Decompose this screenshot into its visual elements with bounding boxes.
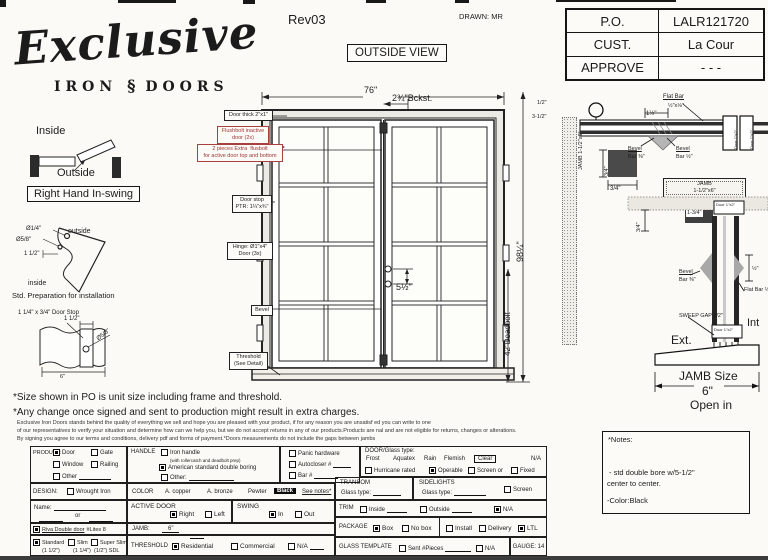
hurricane-checkbox[interactable] bbox=[365, 467, 372, 474]
iron-handle-checkbox[interactable] bbox=[161, 449, 168, 456]
trim-inside-checkbox[interactable] bbox=[360, 506, 367, 513]
option-package-ltl[interactable]: LTL bbox=[518, 525, 538, 532]
dim-bore: 5½" bbox=[396, 282, 412, 292]
railing-checkbox[interactable] bbox=[91, 461, 98, 468]
option-commercial[interactable]: Commercial bbox=[231, 543, 275, 550]
po-row: P.O. LALR121720 bbox=[567, 10, 763, 33]
trim-na-label: N/A bbox=[503, 507, 513, 513]
autocloser-label: Autocloser # bbox=[298, 462, 331, 468]
section-half-dim: ½" bbox=[752, 266, 759, 273]
autocloser-checkbox[interactable] bbox=[289, 461, 296, 468]
plan-h34-dim: 3/4" bbox=[610, 186, 620, 192]
dim-half: 1/2" bbox=[537, 100, 547, 107]
design-label: DESIGN: bbox=[33, 489, 58, 495]
jamb-value[interactable]: 6" bbox=[162, 526, 179, 533]
option-wrought-iron[interactable]: Wrought Iron bbox=[67, 488, 111, 495]
residential-checkbox[interactable] bbox=[172, 543, 179, 550]
door-label: Door bbox=[62, 450, 75, 456]
option-slim[interactable]: Slim bbox=[68, 539, 88, 546]
glass-na[interactable]: N/A bbox=[531, 456, 541, 462]
active-left-checkbox[interactable] bbox=[205, 511, 212, 518]
bevel-bar-1-label: Bevel bbox=[628, 146, 642, 153]
option-active-left[interactable]: Left bbox=[205, 511, 225, 518]
sidelights-glass-type[interactable]: Glass type: bbox=[422, 489, 486, 496]
bracket-dim-label: 1 1/2" bbox=[24, 251, 39, 257]
scan-artifact bbox=[0, 0, 6, 7]
form-glass-template-cell: GLASS TEMPLATE Sent #Pieces N/A bbox=[335, 537, 510, 556]
logo-iron: IRON bbox=[54, 79, 117, 95]
option-operable[interactable]: Operable bbox=[429, 467, 463, 474]
bracket-inside-label: inside bbox=[28, 280, 46, 287]
jamb-size-title: JAMB Size bbox=[679, 369, 738, 383]
hinge-label: Hinge: Ø1"x4" Door (3x) bbox=[227, 242, 273, 260]
form-swing-cell: SWING In Out bbox=[232, 500, 335, 523]
template-sent-label: Sent #Pieces bbox=[408, 546, 443, 552]
template-pieces-blank[interactable] bbox=[445, 545, 471, 552]
name-label: Name: bbox=[34, 505, 52, 511]
active-right-checkbox[interactable] bbox=[170, 511, 177, 518]
operable-label: Operable bbox=[438, 468, 463, 474]
form-product-cell: PRODUCT: Door Gate Window Railing Other bbox=[30, 446, 127, 483]
jamb-label: JAMB: bbox=[132, 526, 150, 532]
swing-label: SWING bbox=[237, 503, 259, 510]
standard-size: (1 1/2") bbox=[42, 548, 60, 555]
american-boring-label: American standard double boring bbox=[168, 465, 256, 471]
bar-label: Bar # bbox=[298, 473, 312, 479]
slim-checkbox[interactable] bbox=[68, 539, 75, 546]
option-template-na[interactable]: N/A bbox=[476, 545, 495, 552]
dim-threehalf: 3-1/2" bbox=[532, 114, 547, 121]
transom-glass-label: Glass type: bbox=[341, 490, 371, 496]
install-checkbox[interactable] bbox=[446, 525, 453, 532]
fixed-checkbox[interactable] bbox=[511, 467, 518, 474]
section-134-dim: 1-3/4" bbox=[686, 210, 703, 217]
door-checkbox[interactable] bbox=[53, 449, 60, 456]
window-checkbox[interactable] bbox=[53, 461, 60, 468]
bracket-dia1-label: Ø1/4" bbox=[26, 226, 41, 232]
operable-checkbox[interactable] bbox=[429, 467, 436, 474]
option-trim-na[interactable]: N/A bbox=[494, 506, 513, 513]
commercial-checkbox[interactable] bbox=[231, 543, 238, 550]
cust-value: La Cour bbox=[659, 33, 763, 55]
notes-line-bore: - std double bore w/5-1/2" bbox=[609, 468, 695, 477]
name-blank[interactable] bbox=[54, 504, 106, 511]
option-swing-in[interactable]: In bbox=[269, 511, 283, 518]
color-label: COLOR bbox=[132, 489, 153, 495]
wrought-iron-label: Wrought Iron bbox=[76, 489, 111, 495]
option-railing[interactable]: Railing bbox=[91, 461, 118, 468]
gauge-value: GAUGE: 14 bbox=[513, 544, 545, 550]
dim-backset: 2¾"Bckst. bbox=[392, 93, 432, 103]
logo-exclusive: Exclusive bbox=[12, 6, 260, 76]
option-hurricane[interactable]: Hurricane rated bbox=[365, 467, 415, 474]
form-jamb-cell: JAMB: 6" bbox=[127, 523, 335, 535]
glass-rain[interactable]: Rain bbox=[424, 456, 436, 462]
option-iron-handle[interactable]: Iron handle bbox=[161, 449, 200, 456]
super-slim-label: Super Slim bbox=[100, 540, 127, 546]
threshold-label: Threshold (See Detail) bbox=[229, 352, 268, 370]
hurricane-label: Hurricane rated bbox=[374, 468, 415, 474]
glass-aquatex[interactable]: Aquatex bbox=[393, 456, 415, 462]
fixed-label: Fixed bbox=[520, 468, 535, 474]
install-label: Install bbox=[455, 525, 472, 532]
inside-label: Inside bbox=[36, 125, 65, 137]
outside-label: Outside bbox=[57, 167, 95, 179]
active-door-label: ACTIVE DOOR bbox=[131, 503, 176, 510]
slim-label: Slim bbox=[77, 540, 88, 546]
form-riva-cell: Riva Double door#Lites 8 bbox=[30, 523, 127, 535]
interior-label: Int bbox=[747, 317, 759, 329]
sidelight-screen-checkbox[interactable] bbox=[504, 486, 511, 493]
glass-template-label: GLASS TEMPLATE bbox=[339, 544, 392, 550]
option-gate[interactable]: Gate bbox=[91, 449, 113, 456]
swing-in-checkbox[interactable] bbox=[269, 511, 276, 518]
notes-line-color: -Color:Black bbox=[607, 496, 648, 505]
autocloser-blank[interactable] bbox=[333, 461, 351, 468]
swing-out-checkbox[interactable] bbox=[295, 511, 302, 518]
trim-outside-blank[interactable] bbox=[452, 506, 472, 513]
panic-checkbox[interactable] bbox=[289, 450, 296, 457]
notes-line-center: center to center. bbox=[607, 479, 661, 488]
ltl-checkbox[interactable] bbox=[518, 525, 525, 532]
doorstop-dim1-label: 1 1/2" bbox=[64, 316, 79, 322]
section-bevel-size: Bar ⅜" bbox=[679, 277, 696, 284]
form-design-cell: DESIGN: Wrought Iron bbox=[30, 483, 127, 500]
option-sidelight-screen[interactable]: Screen bbox=[504, 486, 532, 493]
sidelights-glass-blank[interactable] bbox=[454, 489, 486, 496]
trim-inside-label: Inside bbox=[369, 507, 385, 513]
color-black-selected[interactable]: Black bbox=[274, 488, 296, 494]
section-v34-dim: 3/4" bbox=[636, 222, 643, 232]
po-row: CUST. La Cour bbox=[567, 33, 763, 56]
scan-artifact bbox=[118, 0, 176, 3]
form-gauge-cell: GAUGE: 14 bbox=[510, 537, 547, 556]
option-riva-double-door[interactable]: Riva Double door#Lites 8 bbox=[33, 526, 106, 533]
form-threshold-cell: THRESHOLD Residential Commercial N/A bbox=[127, 535, 335, 556]
option-package-box[interactable]: Box bbox=[373, 525, 393, 532]
po-value: LALR121720 bbox=[659, 10, 763, 32]
section-door-top-label: Door 1"x2" bbox=[716, 202, 735, 207]
jamb-size-box-text: JAMB 1-1/2"x6" bbox=[666, 181, 743, 195]
package-nobox-label: No box bbox=[411, 525, 432, 532]
swing-in-label: In bbox=[278, 511, 283, 518]
option-package-nobox[interactable]: No box bbox=[402, 525, 432, 532]
threshold-na-checkbox[interactable] bbox=[288, 543, 295, 550]
form-sidelights-cell: SIDELIGHTS Glass type: Screen bbox=[413, 477, 547, 500]
other-product-blank[interactable] bbox=[79, 473, 111, 480]
sweep-gap-label: SWEEP GAP 1/2" bbox=[679, 313, 723, 320]
plan-door-b-label: Door 1"x2" bbox=[749, 130, 754, 149]
scan-artifact bbox=[556, 0, 676, 2]
sidelights-label: SIDELIGHTS bbox=[419, 480, 455, 486]
option-package-install[interactable]: Install bbox=[446, 525, 472, 532]
extra-flushbolt-label: 2 pieces Extra flusbolt for active door … bbox=[197, 144, 283, 162]
form-glass-cell: DOOR/Glass type: Frost Aquatex Rain Flem… bbox=[360, 446, 547, 477]
jamb-vertical-label: JAMB 1-1/2"x6" bbox=[578, 132, 585, 170]
scan-artifact bbox=[366, 0, 386, 3]
option-trim-inside[interactable]: Inside bbox=[360, 506, 407, 513]
iron-handle-label: Iron handle bbox=[170, 450, 200, 456]
standard-label: Standard bbox=[42, 540, 64, 546]
flat-bar-label: Flat Bar bbox=[663, 94, 684, 100]
bar-checkbox[interactable] bbox=[289, 472, 296, 479]
form-name-cell: Name: or bbox=[30, 500, 127, 523]
option-other-handle[interactable]: Other: bbox=[161, 474, 234, 481]
cust-label: CUST. bbox=[567, 33, 659, 55]
threshold-form-label: THRESHOLD bbox=[131, 543, 168, 549]
package-label: PACKAGE bbox=[339, 524, 368, 530]
color-copper[interactable]: A. copper bbox=[165, 489, 191, 495]
scan-artifact bbox=[0, 556, 768, 560]
flat-bar-size: ½"x⅛" bbox=[668, 103, 684, 110]
riva-lites-label: #Lites 8 bbox=[87, 527, 106, 533]
fine-print-2: of our representatives to verify your si… bbox=[17, 428, 517, 435]
or-blank-left[interactable] bbox=[39, 515, 63, 522]
note-change: *Any change once signed and sent to prod… bbox=[13, 407, 359, 418]
color-bronze[interactable]: A. bronze bbox=[207, 489, 233, 495]
form-package-cell: PACKAGE Box No box Install Delivery LTL bbox=[335, 517, 547, 537]
transom-glass-type[interactable]: Glass type: bbox=[341, 489, 401, 496]
package-divider bbox=[439, 518, 440, 536]
trim-outside-label: Outside bbox=[429, 507, 450, 513]
commercial-label: Commercial bbox=[240, 543, 275, 550]
sidelights-glass-label: Glass type: bbox=[422, 490, 452, 496]
option-super-slim[interactable]: Super Slim bbox=[91, 539, 127, 546]
template-sent-checkbox[interactable] bbox=[399, 545, 406, 552]
super-slim-size: (1/2") SDL bbox=[94, 548, 120, 555]
swing-out-label: Out bbox=[304, 511, 314, 518]
handing-label: Right Hand In-swing bbox=[27, 186, 140, 202]
trim-label: TRIM bbox=[339, 505, 354, 511]
residential-label: Residential bbox=[181, 543, 213, 550]
window-label: Window bbox=[62, 462, 83, 468]
threshold-na-label: N/A bbox=[297, 543, 308, 550]
screen-or-label: Screen or bbox=[477, 468, 503, 474]
threshold-na-blank[interactable] bbox=[310, 543, 324, 550]
notes-title: *Notes: bbox=[608, 435, 633, 444]
delivery-checkbox[interactable] bbox=[479, 525, 486, 532]
option-threshold-na[interactable]: N/A bbox=[288, 543, 324, 550]
gate-checkbox[interactable] bbox=[91, 449, 98, 456]
wrought-iron-checkbox[interactable] bbox=[67, 488, 74, 495]
option-residential[interactable]: Residential bbox=[172, 543, 213, 550]
color-pewter[interactable]: Pewter bbox=[248, 489, 267, 495]
riva-name-label: Riva Double door bbox=[42, 527, 85, 533]
design-name-field[interactable]: Name: bbox=[34, 504, 106, 511]
form-trim-cell: TRIM Inside Outside N/A bbox=[335, 500, 547, 517]
flushbolt-label: Flushbolt inactive door (2x) bbox=[217, 126, 269, 144]
plan-gap-dim: 1½" bbox=[646, 111, 656, 117]
option-trim-outside[interactable]: Outside bbox=[420, 506, 472, 513]
template-na-checkbox[interactable] bbox=[476, 545, 483, 552]
drawn-by-label: DRAWN: MR bbox=[459, 12, 503, 21]
option-other-product[interactable]: Other bbox=[53, 473, 111, 480]
option-autocloser[interactable]: Autocloser # bbox=[289, 461, 351, 468]
sidelight-screen-label: Screen bbox=[513, 487, 532, 493]
slim-size: (1 1/4") bbox=[73, 548, 91, 555]
revision-label: Rev03 bbox=[288, 12, 326, 27]
transom-glass-blank[interactable] bbox=[373, 489, 401, 496]
bracket-outside-label: outside bbox=[68, 228, 91, 235]
glass-clear-selected[interactable]: Clear bbox=[474, 455, 496, 463]
trim-inside-blank[interactable] bbox=[387, 506, 407, 513]
exterior-label: Ext. bbox=[671, 333, 692, 347]
standard-checkbox[interactable] bbox=[33, 539, 40, 546]
panic-label: Panic hardware bbox=[298, 451, 340, 457]
logo-ornament-icon: § bbox=[127, 76, 135, 95]
or-label: or bbox=[75, 513, 80, 519]
package-box-label: Box bbox=[382, 525, 393, 532]
bracket-caption: Std. Preparation for installation bbox=[12, 291, 115, 300]
outside-view-label: OUTSIDE VIEW bbox=[347, 44, 447, 62]
glass-type-label: DOOR/Glass type: bbox=[365, 448, 415, 454]
po-table: P.O. LALR121720 CUST. La Cour APPROVE - … bbox=[565, 8, 765, 81]
trim-outside-checkbox[interactable] bbox=[420, 506, 427, 513]
approve-label: APPROVE bbox=[567, 57, 659, 79]
option-package-delivery[interactable]: Delivery bbox=[479, 525, 511, 532]
delivery-label: Delivery bbox=[488, 525, 511, 532]
po-row: APPROVE - - - bbox=[567, 57, 763, 79]
gate-label: Gate bbox=[100, 450, 113, 456]
form-color-cell: COLOR A. copper A. bronze Pewter Black S… bbox=[127, 483, 335, 500]
option-panic[interactable]: Panic hardware bbox=[289, 450, 340, 457]
jamb-open-label: Open in bbox=[690, 398, 732, 412]
plan-door-a-label: Door 1"x2" bbox=[733, 130, 738, 149]
form-handle-cell: HANDLE Iron handle (with rollercatch and… bbox=[127, 446, 280, 483]
approve-value: - - - bbox=[659, 57, 763, 79]
option-standard[interactable]: Standard bbox=[33, 539, 64, 546]
jamb-size-value: 6" bbox=[702, 384, 713, 398]
iron-handle-sub: (with rollercatch and deadbolt prep) bbox=[170, 458, 241, 463]
scan-artifact bbox=[455, 0, 469, 3]
section-door-bottom-label: Door 1"x2" bbox=[714, 327, 733, 332]
active-right-label: Right bbox=[179, 511, 194, 518]
screen-or-checkbox[interactable] bbox=[468, 467, 475, 474]
active-left-label: Left bbox=[214, 511, 225, 518]
door-stop-label: Door stop PTR: 1¼"x¾" bbox=[232, 195, 272, 213]
option-screen-or[interactable]: Screen or bbox=[468, 467, 503, 474]
trim-na-checkbox[interactable] bbox=[494, 506, 501, 513]
glass-frost[interactable]: Frost bbox=[366, 456, 380, 462]
other-handle-blank[interactable] bbox=[189, 474, 234, 481]
bevel-bar-2-label: Bevel bbox=[676, 146, 690, 153]
door-thick-label: Door thick 2"x1" bbox=[224, 110, 273, 121]
plan-v34-dim: 3/4" bbox=[604, 166, 611, 176]
form-active-door-cell: ACTIVE DOOR Right Left bbox=[127, 500, 232, 523]
other-product-checkbox[interactable] bbox=[53, 473, 60, 480]
transom-label: TRANSOM bbox=[340, 480, 370, 486]
form-profile-cell: Standard Slim Super Slim (1 1/2") (1 1/4… bbox=[30, 535, 127, 556]
notes-box: *Notes: - std double bore w/5-1/2" cente… bbox=[602, 431, 750, 514]
railing-label: Railing bbox=[100, 462, 118, 468]
other-product-label: Other bbox=[62, 474, 77, 480]
section-bevel-label: Bevel bbox=[679, 269, 693, 276]
option-fixed[interactable]: Fixed bbox=[511, 467, 535, 474]
section-flat-bar-label: Flat Bar ½"x⅛" bbox=[744, 287, 768, 294]
po-label: P.O. bbox=[567, 10, 659, 32]
option-swing-out[interactable]: Out bbox=[295, 511, 314, 518]
super-slim-checkbox[interactable] bbox=[91, 539, 98, 546]
doorstop-width-label: 6" bbox=[60, 374, 65, 381]
option-door[interactable]: Door bbox=[53, 449, 75, 456]
handle-label: HANDLE bbox=[131, 449, 155, 455]
scan-artifact bbox=[243, 0, 255, 4]
or-blank-right[interactable] bbox=[89, 515, 113, 522]
color-see-notes[interactable]: See notes* bbox=[302, 489, 331, 495]
bracket-dia2-label: Ø5/8" bbox=[16, 237, 31, 243]
bevel-bar-2-size: Bar ½" bbox=[676, 154, 693, 161]
option-american-boring[interactable]: American standard double boring bbox=[159, 464, 256, 471]
fine-print-3: By signing you agree to our terms and co… bbox=[17, 436, 375, 443]
bevel-label: Bevel bbox=[251, 305, 273, 316]
order-sheet: Exclusive IRON § DOORS Rev03 DRAWN: MR O… bbox=[0, 0, 768, 560]
other-handle-label: Other: bbox=[170, 475, 187, 481]
form-transom-cell: TRANSOM Glass type: bbox=[335, 477, 413, 500]
package-nobox-checkbox[interactable] bbox=[402, 525, 409, 532]
option-window[interactable]: Window bbox=[53, 461, 83, 468]
other-handle-checkbox[interactable] bbox=[161, 474, 168, 481]
dim-deadbolt: 42"Deadbolt bbox=[503, 312, 512, 356]
package-box-checkbox[interactable] bbox=[373, 525, 380, 532]
ltl-label: LTL bbox=[527, 525, 538, 532]
template-na-label: N/A bbox=[485, 546, 495, 552]
option-template-sent[interactable]: Sent #Pieces bbox=[399, 545, 471, 552]
glass-flemish[interactable]: Flemish bbox=[444, 456, 465, 462]
riva-checkbox[interactable] bbox=[33, 526, 40, 533]
dim-width: 76" bbox=[364, 85, 377, 95]
option-bar[interactable]: Bar # bbox=[289, 472, 338, 479]
dim-height: 98¼" bbox=[515, 241, 525, 262]
option-active-right[interactable]: Right bbox=[170, 511, 194, 518]
bevel-bar-1-size: Bar ⅜" bbox=[628, 154, 645, 161]
fine-print-1: Exclusive Iron Doors stands behind the q… bbox=[17, 420, 431, 427]
american-boring-checkbox[interactable] bbox=[159, 464, 166, 471]
